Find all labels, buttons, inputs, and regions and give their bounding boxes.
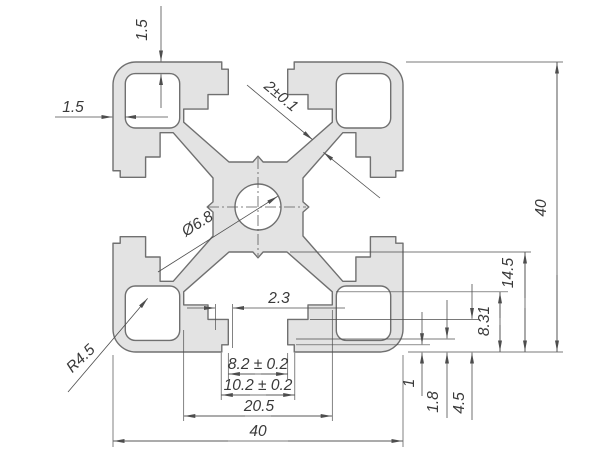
dim-label-undercut: 8.31 <box>476 306 493 336</box>
dim-label-4-5: 4.5 <box>451 392 468 414</box>
dim-slot-opening: 8.2 ± 0.2 <box>228 353 289 379</box>
dim-label-1-8: 1.8 <box>425 391 442 413</box>
dim-label-1: 1 <box>401 379 418 388</box>
corner-cavity-bottom-right <box>336 286 390 340</box>
corner-cavity-bottom-left <box>125 286 179 340</box>
dim-label-slot-depth: 14.5 <box>500 258 517 289</box>
dim-label-height: 40 <box>533 199 550 217</box>
corner-cavity-top-left <box>125 74 179 128</box>
extrusion-profile <box>113 62 403 352</box>
corner-cavity-top-right <box>336 74 390 128</box>
dim-label-wall-left: 1.5 <box>62 99 84 116</box>
drawing-canvas: 1.5 1.5 2±0.1 Ø6.8 R4.5 40 14.5 <box>0 0 600 450</box>
dim-label-cavity-width: 20.5 <box>243 398 275 415</box>
dim-label-radius: R4.5 <box>63 341 99 376</box>
dim-label-hole: Ø6.8 <box>178 208 217 241</box>
dim-label-lip: 2.3 <box>267 290 290 307</box>
technical-drawing: 1.5 1.5 2±0.1 Ø6.8 R4.5 40 14.5 <box>0 0 600 450</box>
dim-label-under-lip: 10.2 ± 0.2 <box>224 377 293 394</box>
dim-label-slot-opening: 8.2 ± 0.2 <box>228 356 289 373</box>
dim-label-wall-top: 1.5 <box>134 19 151 41</box>
dim-label-width: 40 <box>249 423 267 440</box>
